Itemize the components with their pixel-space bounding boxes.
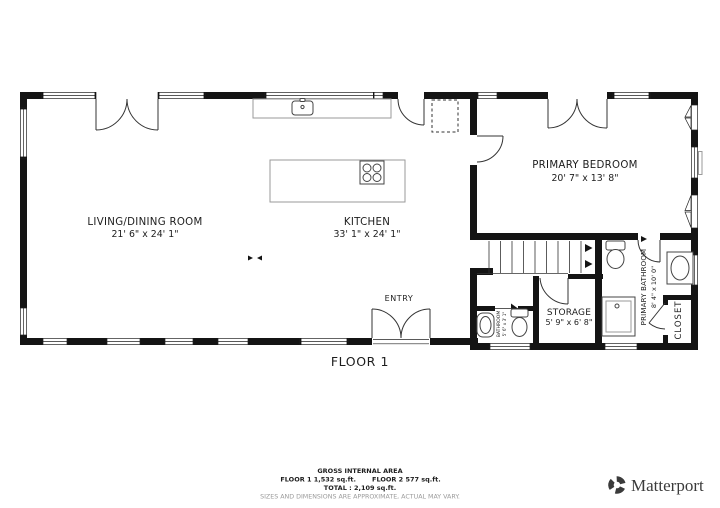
entry-label: ENTRY	[385, 294, 414, 303]
brand-wordmark: Matterport	[631, 476, 704, 495]
floor1-area: FLOOR 1 1,532 sq.ft.	[280, 476, 356, 484]
kitchen-fixtures	[253, 99, 458, 203]
vanity-sink-icon	[667, 252, 693, 284]
storage-label: STORAGE	[547, 308, 591, 318]
french-doors-icon	[548, 99, 607, 128]
primary-bathroom-dims: 8' 4" x 10' 0"	[650, 266, 658, 308]
window-icon	[165, 338, 193, 344]
toilet-icon	[606, 241, 625, 269]
bathroom-dims: 5' 6" x 3' 1"	[502, 312, 507, 337]
door-icon	[477, 136, 503, 162]
window-icon	[613, 92, 650, 99]
kitchen-dims: 33' 1" x 24' 1"	[333, 229, 400, 240]
matterport-icon	[609, 477, 625, 493]
storage-dims: 5' 9" x 6' 8"	[545, 318, 592, 327]
primary-bathroom-label: PRIMARY BATHROOM	[640, 249, 648, 326]
staircase	[477, 241, 593, 274]
entry-doors-icon	[372, 309, 430, 344]
sliding-door-icon	[495, 304, 518, 309]
kitchen-label: KITCHEN	[344, 217, 390, 228]
window-icon	[691, 147, 702, 178]
french-doors-icon	[96, 99, 158, 130]
floor-plan-page: LIVING/DINING ROOM 21' 6" x 24' 1" KITCH…	[0, 0, 720, 508]
opening-markers	[248, 256, 262, 261]
window-icon	[20, 308, 26, 335]
window-icon	[490, 343, 530, 349]
brand-logo: Matterport	[609, 476, 704, 495]
primary-bedroom-dims: 20' 7" x 13' 8"	[551, 173, 618, 184]
floor2-area: FLOOR 2 577 sq.ft.	[372, 476, 441, 484]
floor-plan-canvas: LIVING/DINING ROOM 21' 6" x 24' 1" KITCH…	[0, 0, 720, 508]
door-icon	[398, 99, 424, 125]
window-icon	[605, 343, 637, 349]
window-icon	[20, 108, 27, 158]
primary-bedroom-label: PRIMARY BEDROOM	[532, 160, 638, 171]
cooktop-icon	[360, 161, 384, 184]
toilet-icon	[511, 309, 528, 337]
window-icon	[265, 92, 383, 99]
pedestal-sink-icon	[477, 313, 494, 337]
door-icon	[540, 278, 568, 304]
casement-window-icon	[685, 195, 698, 228]
gross-area-label: GROSS INTERNAL AREA	[317, 467, 402, 475]
window-icon	[478, 92, 497, 98]
window-icon	[158, 92, 205, 99]
closet-label: CLOSET	[674, 300, 684, 339]
window-icon	[107, 338, 140, 344]
living-room-dims: 21' 6" x 24' 1"	[111, 229, 178, 240]
total-area: TOTAL : 2,109 sq.ft.	[324, 484, 396, 492]
stair-direction-arrow	[585, 260, 593, 268]
kitchen-island	[270, 160, 405, 202]
casement-window-icon	[685, 105, 698, 130]
living-room-label: LIVING/DINING ROOM	[87, 217, 202, 228]
disclaimer: SIZES AND DIMENSIONS ARE APPROXIMATE, AC…	[260, 494, 460, 501]
kitchen-counter	[253, 99, 391, 118]
shower-icon	[602, 297, 635, 336]
window-icon	[218, 338, 248, 344]
dashed-appliance-icon	[432, 100, 458, 132]
window-icon	[43, 338, 67, 344]
floor-label: FLOOR 1	[331, 354, 389, 369]
footer: GROSS INTERNAL AREA FLOOR 1 1,532 sq.ft.…	[260, 467, 460, 501]
window-icon	[300, 338, 348, 345]
sink-icon	[292, 99, 313, 116]
window-icon	[42, 92, 96, 99]
stair-direction-arrow	[585, 244, 593, 252]
